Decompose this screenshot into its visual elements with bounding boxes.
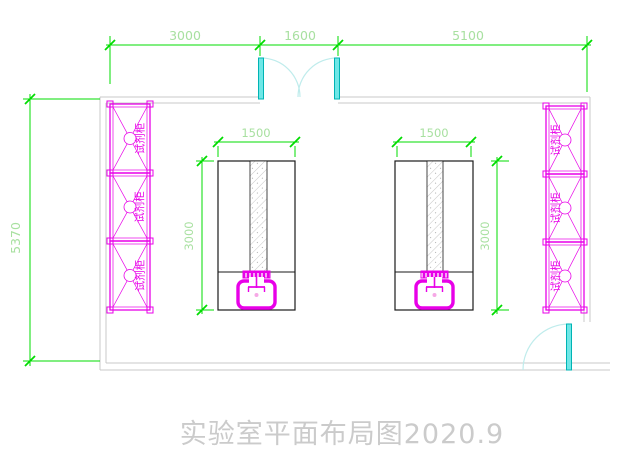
hatched-strip	[250, 161, 267, 272]
cabinet-label: 试剂柜	[134, 123, 147, 155]
dim-room-height: 5370	[8, 222, 23, 254]
island-right-depth-dimension: 3000	[478, 156, 509, 315]
left-dimension: 5370	[8, 94, 100, 366]
reagent-cabinet-icon: 试剂柜	[543, 239, 587, 313]
island-right-width-dimension: 1500	[392, 126, 476, 157]
floor-plan-drawing: 3000 1600 5100 5370 试剂柜	[0, 0, 619, 469]
double-swing-door-icon	[259, 58, 340, 99]
top-dimension-chain: 3000 1600 5100	[105, 28, 592, 92]
cabinet-label: 试剂柜	[134, 260, 147, 292]
reagent-cabinet-icon: 试剂柜	[543, 171, 587, 245]
cabinet-label: 试剂柜	[133, 191, 146, 223]
dim-top-right: 5100	[452, 28, 484, 43]
door-leaf	[567, 324, 572, 370]
cabinet-label: 试剂柜	[549, 192, 562, 224]
dim-top-middle: 1600	[284, 28, 316, 43]
room-walls	[100, 97, 610, 370]
floor-plan-canvas: 3000 1600 5100 5370 试剂柜	[0, 0, 619, 469]
drawing-title: 实验室平面布局图2020.9	[180, 419, 504, 450]
island-bench-right: 1500 3000	[392, 126, 509, 315]
reagent-cabinet-icon: 试剂柜	[107, 238, 153, 313]
reagent-cabinet-icon: 试剂柜	[107, 170, 153, 244]
dim-island-left-depth: 3000	[182, 221, 196, 250]
island-bench-left: 1500 3000	[182, 126, 300, 315]
reagent-cabinet-icon: 试剂柜	[107, 101, 153, 176]
cabinet-label: 试剂柜	[549, 124, 562, 156]
cabinet-label: 试剂柜	[549, 260, 562, 292]
hatched-strip	[427, 161, 443, 272]
dim-top-left: 3000	[169, 28, 201, 43]
island-left-depth-dimension: 3000	[182, 156, 214, 315]
reagent-cabinet-icon: 试剂柜	[543, 103, 587, 177]
cabinet-column-right: 试剂柜 试剂柜 试剂柜	[543, 103, 587, 313]
dim-island-right-depth: 3000	[478, 221, 492, 250]
dim-island-left-width: 1500	[241, 126, 270, 140]
door-leaf-left	[259, 58, 264, 99]
door-leaf-right	[335, 58, 340, 99]
dim-island-right-width: 1500	[419, 126, 448, 140]
island-left-width-dimension: 1500	[213, 126, 300, 157]
cabinet-column-left: 试剂柜 试剂柜 试剂柜	[107, 101, 153, 313]
